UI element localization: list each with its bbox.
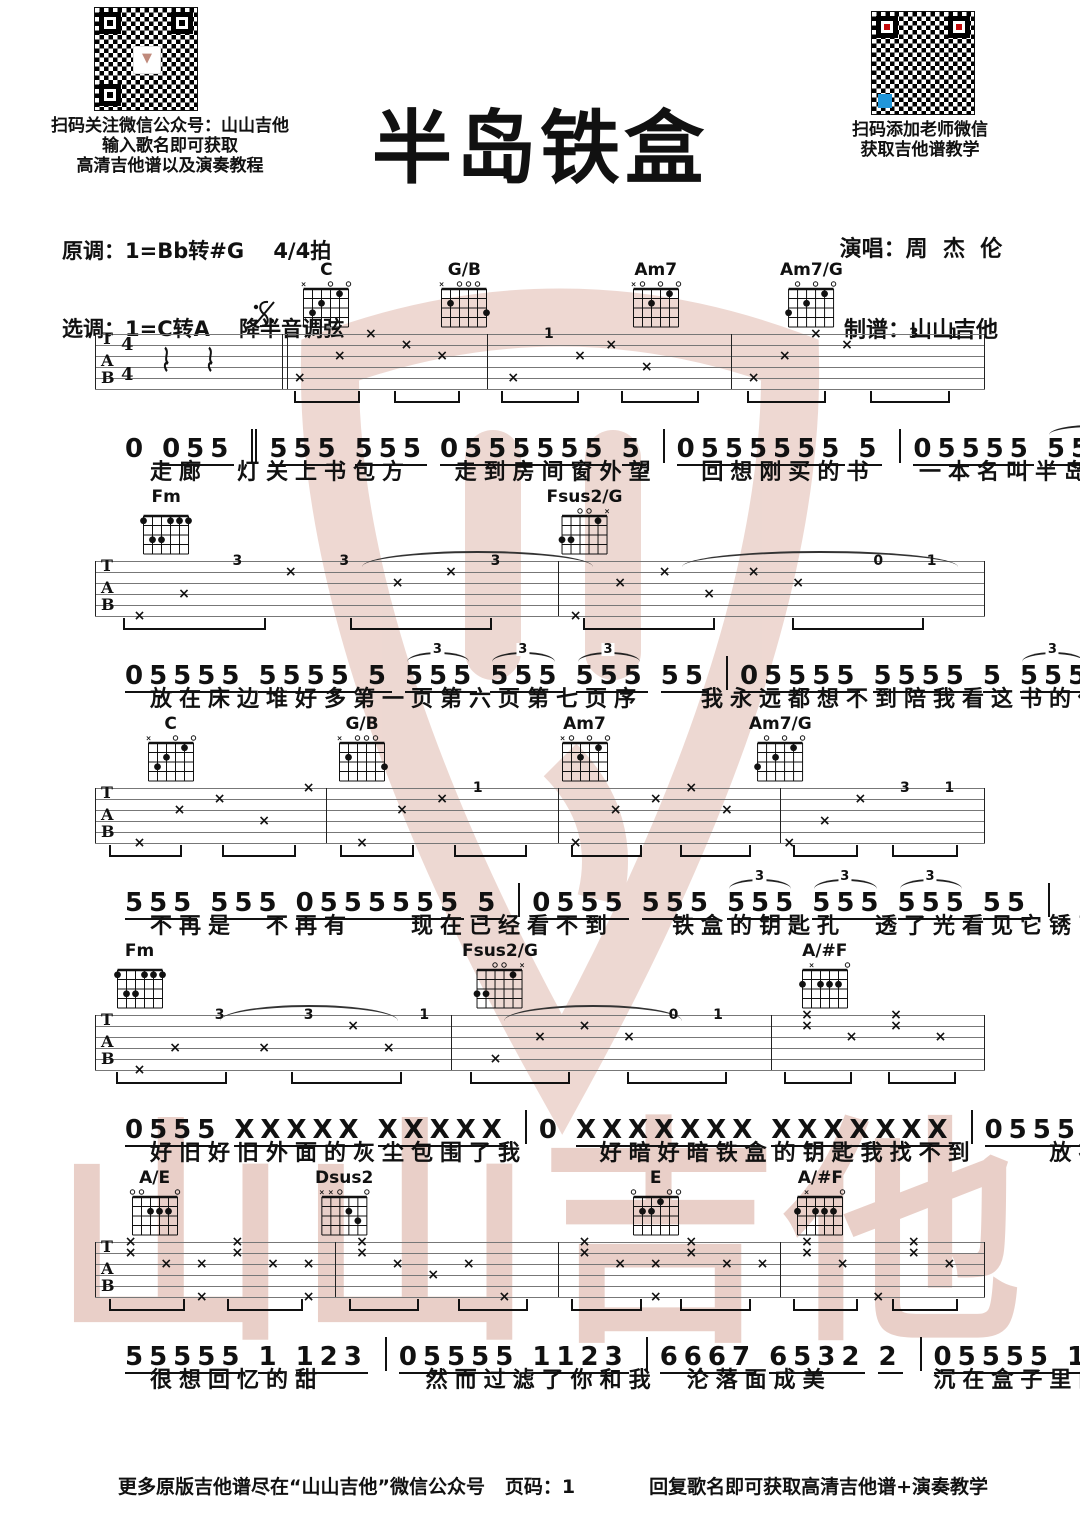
mute-x-mark: × xyxy=(579,1019,591,1033)
footer-left: 更多原版吉他谱尽在“山山吉他”微信公众号 xyxy=(118,1472,485,1499)
chord-name: G/B xyxy=(335,716,390,733)
mute-x-mark: × xyxy=(748,371,760,385)
beam-zone xyxy=(95,1070,985,1094)
quarter-rest-icon xyxy=(206,346,216,377)
chord-diagram-Dsus2: Dsus2×× xyxy=(315,1170,373,1241)
chord-diagram-A/#F: A/#F× xyxy=(793,1170,848,1241)
melody-numbers: 555551123055551123666765322055551123 xyxy=(125,1321,1055,1367)
tab-staff: TAB××3×3××1××××01×××××× xyxy=(95,1015,985,1070)
beam-bracket xyxy=(571,1299,642,1311)
mute-x-mark: × xyxy=(819,814,831,828)
mute-x-mark: × xyxy=(383,1041,395,1055)
chord-grid: × xyxy=(628,280,683,333)
mute-x-mark: × xyxy=(303,781,315,795)
footer-right: 回复歌名即可获取高清吉他谱+演奏教学 xyxy=(649,1472,988,1499)
melody-group: 55 xyxy=(661,663,709,693)
svg-text:×: × xyxy=(804,1189,810,1197)
chord-diagram-G/B: G/B× xyxy=(335,716,390,787)
beam-bracket xyxy=(571,845,642,857)
beam-bracket xyxy=(394,391,459,403)
melody-barline xyxy=(971,1110,973,1144)
melody-group: 55555 xyxy=(125,1344,245,1374)
svg-text:×: × xyxy=(630,281,636,289)
barline xyxy=(780,788,781,843)
beam-bracket xyxy=(350,618,493,630)
chord-diagram-Am7: Am7× xyxy=(557,716,612,787)
mute-x-mark: × xyxy=(748,565,760,579)
melody-group: 1123 xyxy=(1067,1344,1080,1374)
beam-bracket xyxy=(680,845,751,857)
chord-name: A/E xyxy=(127,1170,182,1187)
mute-x-mark: × xyxy=(685,1246,697,1260)
qr-right-caption: 扫码添加老师微信 获取吉他谱教学 xyxy=(760,120,1080,160)
melody-group: 555 xyxy=(1020,663,1080,693)
tab-letter-B: B xyxy=(101,1051,115,1067)
barline xyxy=(780,1242,781,1297)
melody-group: 1123 xyxy=(532,1344,628,1374)
beam-bracket xyxy=(793,1299,858,1311)
barline xyxy=(558,561,559,616)
mute-x-mark: × xyxy=(579,1246,591,1260)
melody-barline xyxy=(920,1337,922,1371)
melody-group: 05555 xyxy=(740,663,860,693)
mute-x-mark: × xyxy=(890,1019,902,1033)
melody-group: 055 xyxy=(162,436,234,466)
mute-x-mark: × xyxy=(614,1257,626,1271)
melody-group: 05555 xyxy=(399,1344,519,1374)
svg-text:×: × xyxy=(604,508,610,516)
chord-name: Fm xyxy=(112,943,167,960)
chord-name: Fsus2/G xyxy=(547,489,623,506)
tab-system-4: FmFsus2/G×A/#F×TAB××3×3××1××××01××××××05… xyxy=(0,943,1080,1170)
mute-x-mark: × xyxy=(365,327,377,341)
melody-group: 05555 xyxy=(934,1344,1054,1374)
barline xyxy=(558,788,559,843)
tab-system-5: A/EDsus2××EA/#F×TAB×××××××××××××××××××××… xyxy=(0,1170,1080,1397)
chord-grid: × xyxy=(557,734,612,787)
chord-row: C×G/B×Am7×Am7/G xyxy=(95,716,985,788)
tab-system-1: C×G/B×Am7×Am7/GTAB44××××××1×××××××310055… xyxy=(0,262,1080,489)
fret-number-mark: 1 xyxy=(544,327,554,341)
barline xyxy=(95,334,96,389)
svg-text:×: × xyxy=(439,281,445,289)
sheet-page: 山山吉他 ▼ 扫码关注微信公众号：山山吉他 输入歌名即可获取 高清吉他谱以及演奏… xyxy=(0,0,1080,1527)
beam-bracket xyxy=(888,1072,956,1084)
melody-group: 555 xyxy=(405,663,477,693)
mute-x-mark: × xyxy=(196,1257,208,1271)
chord-diagram-E: E xyxy=(628,1170,683,1241)
melody-group: 1 xyxy=(258,1344,282,1374)
mute-x-mark: × xyxy=(445,565,457,579)
barline xyxy=(984,1015,985,1070)
fret-number-mark: 1 xyxy=(949,327,959,341)
fret-number-mark: 3 xyxy=(491,554,501,568)
mute-x-mark: × xyxy=(846,1030,858,1044)
tab-letter-T: T xyxy=(101,331,113,347)
mute-x-mark: × xyxy=(614,576,626,590)
barline xyxy=(335,1242,336,1297)
melody-group: 0 xyxy=(539,1117,563,1143)
beam-bracket xyxy=(793,845,858,857)
tab-letter-A: A xyxy=(101,353,113,369)
beam-bracket xyxy=(349,1299,420,1311)
mute-x-mark: × xyxy=(334,349,346,363)
tab-letter-B: B xyxy=(101,824,115,840)
chord-name: Dsus2 xyxy=(315,1170,373,1187)
chord-grid: × xyxy=(547,507,623,560)
tab-system-2: FmFsus2/G×TAB××3×3××3××××××0105555555555… xyxy=(0,489,1080,716)
mute-x-mark: × xyxy=(396,803,408,817)
chord-name: Am7/G xyxy=(749,716,812,733)
melody-group: 5 xyxy=(622,436,646,466)
mute-x-mark: × xyxy=(258,814,270,828)
mute-x-mark: × xyxy=(605,338,617,352)
tab-staff: TAB×××××××××××××××××××××××××××××××× xyxy=(95,1242,985,1297)
beam-bracket xyxy=(470,1072,570,1084)
chord-grid xyxy=(628,1188,683,1241)
mute-x-mark: × xyxy=(721,1257,733,1271)
chord-grid xyxy=(139,507,194,560)
barline xyxy=(731,334,732,389)
mute-x-mark: × xyxy=(490,1052,502,1066)
tab-letter-T: T xyxy=(101,1012,113,1028)
beam-bracket xyxy=(621,391,698,403)
mute-x-mark: × xyxy=(841,338,853,352)
tab-staff: TAB××3×3××3××××××01 xyxy=(95,561,985,616)
beam-bracket xyxy=(222,845,295,857)
tab-letter-A: A xyxy=(101,580,113,596)
melody-group: 555 xyxy=(125,890,197,920)
chord-diagram-A/#F: A/#F× xyxy=(797,943,852,1014)
mute-x-mark: × xyxy=(463,1257,475,1271)
fret-number-mark: 0 xyxy=(873,554,883,568)
melody-group: 6667 xyxy=(660,1344,756,1374)
mute-x-mark: × xyxy=(650,1257,662,1271)
melody-barline xyxy=(518,883,520,917)
tab-letter-T: T xyxy=(101,1239,113,1255)
chord-name: E xyxy=(628,1170,683,1187)
mute-x-mark: × xyxy=(908,1246,920,1260)
fret-number-mark: 1 xyxy=(473,781,483,795)
mute-x-mark: × xyxy=(534,1030,546,1044)
melody-group: 555 xyxy=(576,663,648,693)
mute-x-mark: × xyxy=(436,349,448,363)
mute-x-mark: × xyxy=(294,371,306,385)
mute-x-mark: × xyxy=(650,792,662,806)
melody-group: 05555 xyxy=(913,436,1033,466)
mute-x-mark: × xyxy=(392,1257,404,1271)
mute-x-mark: × xyxy=(267,1257,279,1271)
fret-number-mark: 0 xyxy=(669,1008,679,1022)
tab-letter-T: T xyxy=(101,558,113,574)
chord-diagram-Am7: Am7× xyxy=(628,262,683,333)
beam-zone xyxy=(95,1297,985,1321)
melody-numbers: 00555555550555555505555555055555555 xyxy=(125,413,1055,459)
mute-x-mark: × xyxy=(703,587,715,601)
svg-text:×: × xyxy=(808,962,814,970)
chord-name: G/B xyxy=(437,262,492,279)
melody-group: 6532 xyxy=(769,1344,865,1374)
melody-group: 555 xyxy=(490,663,562,693)
chord-name: Am7/G xyxy=(780,262,843,279)
mute-x-mark: × xyxy=(178,587,190,601)
tab-letter-A: A xyxy=(101,1034,113,1050)
barline xyxy=(771,1015,772,1070)
fret-number-mark: 1 xyxy=(945,781,955,795)
chord-name: A/#F xyxy=(793,1170,848,1187)
melody-barline xyxy=(525,1110,527,1144)
mute-x-mark: × xyxy=(837,1257,849,1271)
melody-group: 555 xyxy=(727,890,799,920)
mute-x-mark: × xyxy=(347,1019,359,1033)
mute-x-mark: × xyxy=(641,360,653,374)
mute-x-mark: × xyxy=(685,781,697,795)
barline xyxy=(95,561,96,616)
qr-center-logo: ▼ xyxy=(133,46,161,74)
mute-x-mark: × xyxy=(944,1257,956,1271)
melody-group: 0555555 xyxy=(677,436,846,466)
melody-numbers: 0555XXXXXXXXXX0XXXXXXXXXXXXXX055551123 xyxy=(125,1094,1055,1140)
barline xyxy=(95,788,96,843)
beam-bracket xyxy=(116,1072,227,1084)
melody-group: 05555 xyxy=(125,663,245,693)
beam-bracket xyxy=(792,618,924,630)
mute-x-mark: × xyxy=(801,1246,813,1260)
tab-letter-A: A xyxy=(101,1261,113,1277)
melody-group: 0555 xyxy=(125,1117,221,1147)
melody-group: 5 xyxy=(858,436,882,466)
melody-group: 555 xyxy=(898,890,970,920)
melody-group: 2 xyxy=(878,1344,902,1374)
fret-number-mark: 3 xyxy=(339,554,349,568)
chord-diagram-Fm: Fm xyxy=(139,489,194,560)
chord-diagram-C: C× xyxy=(299,262,354,333)
melody-group: 555 xyxy=(812,890,884,920)
melody-barline xyxy=(726,656,728,690)
tab-letter-A: A xyxy=(101,807,113,823)
svg-text:×: × xyxy=(145,735,151,743)
melody-barline xyxy=(385,1337,387,1371)
beam-bracket xyxy=(583,618,715,630)
chord-diagram-C: C× xyxy=(143,716,198,787)
mute-x-mark: × xyxy=(356,1246,368,1260)
fret-number-mark: 1 xyxy=(713,1008,723,1022)
tab-staff: TAB××××××××1××××××××31 xyxy=(95,788,985,843)
barline xyxy=(984,561,985,616)
tab-letter-B: B xyxy=(101,370,115,386)
beam-bracket xyxy=(892,845,957,857)
mute-x-mark: × xyxy=(392,576,404,590)
beam-bracket xyxy=(501,391,578,403)
chord-row: FmFsus2/G×A/#F× xyxy=(95,943,985,1015)
chord-row: C×G/B×Am7×Am7/G xyxy=(95,262,985,334)
melody-group: XXXXX xyxy=(378,1117,508,1147)
barline xyxy=(487,334,488,389)
chord-row: A/EDsus2××EA/#F× xyxy=(95,1170,985,1242)
melody-group: 123 xyxy=(296,1344,368,1374)
beam-bracket xyxy=(291,1072,402,1084)
mute-x-mark: × xyxy=(232,1246,244,1260)
barline xyxy=(95,1015,96,1070)
mute-x-mark: × xyxy=(401,338,413,352)
beam-bracket xyxy=(784,1072,852,1084)
singer: 演唱：周 杰 伦 xyxy=(762,236,1080,263)
mute-x-mark: × xyxy=(574,349,586,363)
fret-number-mark: 3 xyxy=(909,327,919,341)
mute-x-mark: × xyxy=(610,803,622,817)
svg-text:×: × xyxy=(519,962,525,970)
melody-barline xyxy=(251,429,253,463)
beam-bracket xyxy=(892,1299,957,1311)
chord-name: Am7 xyxy=(557,716,612,733)
beam-zone xyxy=(95,616,985,640)
melody-group: 0555555 xyxy=(296,890,465,920)
chord-row: FmFsus2/G× xyxy=(95,489,985,561)
mute-x-mark: × xyxy=(427,1268,439,1282)
chord-diagram-A/E: A/E xyxy=(127,1170,182,1241)
chord-diagram-Am7/G: Am7/G xyxy=(780,262,843,333)
chord-grid xyxy=(112,961,167,1014)
melody-group: 555 xyxy=(642,890,714,920)
mute-x-mark: × xyxy=(285,565,297,579)
melody-group: 5555 xyxy=(873,663,969,693)
tab-letter-B: B xyxy=(101,1278,115,1294)
mute-x-mark: × xyxy=(125,1246,137,1260)
melody-group: 5 xyxy=(477,890,501,920)
mute-x-mark: × xyxy=(507,371,519,385)
chord-diagram-Am7/G: Am7/G xyxy=(749,716,812,787)
melody-group: 555 xyxy=(355,436,427,466)
teacher-qr-code-right xyxy=(872,12,974,114)
mute-x-mark: × xyxy=(721,803,733,817)
beam-bracket xyxy=(747,391,827,403)
beam-bracket xyxy=(458,1299,529,1311)
mute-x-mark: × xyxy=(792,576,804,590)
chord-diagram-Fsus2/G: Fsus2/G× xyxy=(547,489,623,560)
chord-diagram-Fsus2/G: Fsus2/G× xyxy=(462,943,538,1014)
beam-bracket xyxy=(627,1072,727,1084)
melody-barline xyxy=(899,429,901,463)
chord-name: Am7 xyxy=(628,262,683,279)
beam-bracket xyxy=(109,845,182,857)
mute-x-mark: × xyxy=(810,327,822,341)
svg-text:×: × xyxy=(301,281,307,289)
chord-name: A/#F xyxy=(797,943,852,960)
melody-group: 0555 xyxy=(532,890,628,920)
beam-zone xyxy=(95,389,985,413)
mute-x-mark: × xyxy=(623,1030,635,1044)
beam-bracket xyxy=(870,391,950,403)
mute-x-mark: × xyxy=(169,1041,181,1055)
mute-x-mark: × xyxy=(659,565,671,579)
melody-group: 5555 xyxy=(258,663,354,693)
chord-grid xyxy=(749,734,812,787)
barline xyxy=(984,1242,985,1297)
barline xyxy=(326,788,327,843)
chord-name: Fm xyxy=(139,489,194,506)
mute-x-mark: × xyxy=(935,1030,947,1044)
chord-grid: × xyxy=(437,280,492,333)
barline xyxy=(95,1242,96,1297)
melody-barline xyxy=(646,1337,648,1371)
melody-group: XXXXXXX xyxy=(576,1117,758,1147)
tab-system-3: C×G/B×Am7×Am7/GTAB××××××××1××××××××31555… xyxy=(0,716,1080,943)
melody-group: 555 xyxy=(210,890,282,920)
mute-x-mark: × xyxy=(779,349,791,363)
mute-x-mark: × xyxy=(214,792,226,806)
melody-group: 05555 xyxy=(985,1117,1080,1147)
mute-x-mark: × xyxy=(174,803,186,817)
chord-diagram-Fm: Fm xyxy=(112,943,167,1014)
chord-name: C xyxy=(143,716,198,733)
melody-group: 5 xyxy=(368,663,392,693)
tab-letter-T: T xyxy=(101,785,113,801)
mute-x-mark: × xyxy=(801,1019,813,1033)
melody-group: 5 xyxy=(983,663,1007,693)
chord-name: C xyxy=(299,262,354,279)
melody-group: 0 xyxy=(125,436,149,462)
chord-grid: × xyxy=(335,734,390,787)
chord-name: Fsus2/G xyxy=(462,943,538,960)
barline xyxy=(282,334,288,389)
fret-number-mark: 3 xyxy=(900,781,910,795)
beam-bracket xyxy=(340,845,413,857)
svg-text:×: × xyxy=(559,735,565,743)
mute-x-mark: × xyxy=(303,1257,315,1271)
barline xyxy=(984,788,985,843)
svg-text:×: × xyxy=(328,1189,334,1197)
melody-group: 0555555 xyxy=(440,436,609,466)
chord-grid: × xyxy=(143,734,198,787)
tab-letter-B: B xyxy=(101,597,115,613)
tab-staff: TAB44××××××1×××××××31 xyxy=(95,334,985,389)
melody-group: 5555 xyxy=(1047,436,1080,466)
barline xyxy=(984,334,985,389)
melody-group: 555 xyxy=(269,436,341,466)
fret-number-mark: 3 xyxy=(304,1008,314,1022)
mute-x-mark: × xyxy=(757,1257,769,1271)
melody-group: XXXXX xyxy=(234,1117,364,1147)
time-signature: 4 xyxy=(121,336,134,354)
svg-text:×: × xyxy=(337,735,343,743)
fret-number-mark: 3 xyxy=(215,1008,225,1022)
segno-icon xyxy=(251,298,277,334)
beam-bracket xyxy=(454,845,527,857)
melody-numbers: 55555505555555055555555555555555 xyxy=(125,867,1055,913)
beam-bracket xyxy=(227,1299,303,1311)
melody-numbers: 0555555555555555555550555555555555555555… xyxy=(125,640,1055,686)
beam-bracket xyxy=(294,391,359,403)
fret-number-mark: 1 xyxy=(927,554,937,568)
beam-bracket xyxy=(680,1299,751,1311)
barline xyxy=(451,1015,452,1070)
time-signature: 4 xyxy=(121,366,134,384)
melody-group: XXXXXXX xyxy=(771,1117,953,1147)
fret-number-mark: 3 xyxy=(233,554,243,568)
beam-zone xyxy=(95,843,985,867)
melody-barline xyxy=(663,429,665,463)
melody-barline xyxy=(1048,883,1050,917)
chord-diagram-G/B: G/B× xyxy=(437,262,492,333)
chord-grid: × xyxy=(462,961,538,1014)
quarter-rest-icon xyxy=(162,346,172,377)
mute-x-mark: × xyxy=(160,1257,172,1271)
fret-number-mark: 1 xyxy=(419,1008,429,1022)
chord-grid: × xyxy=(299,280,354,333)
melody-group: 55 xyxy=(983,890,1031,920)
tab-systems: C×G/B×Am7×Am7/GTAB44××××××1×××××××310055… xyxy=(0,262,1080,1397)
barline xyxy=(558,1242,559,1297)
